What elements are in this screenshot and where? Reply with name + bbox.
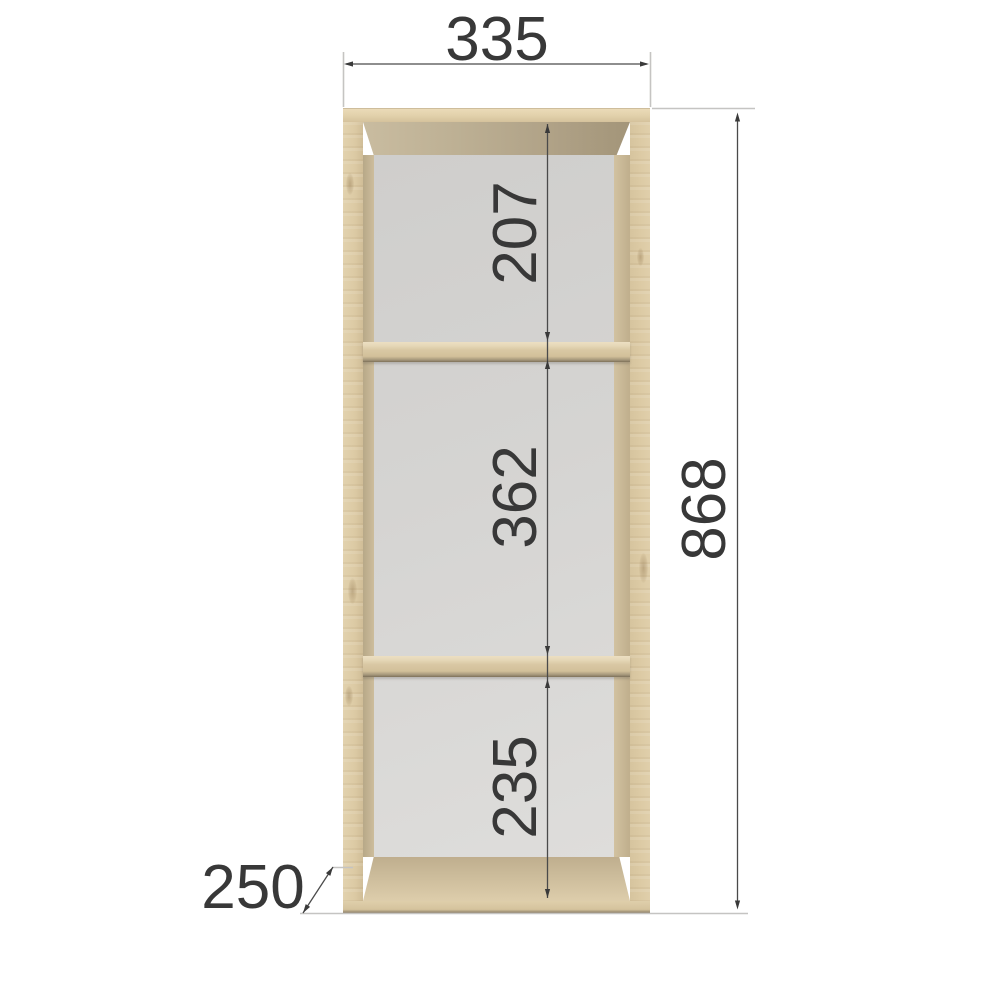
top-compartment-dimension-label: 207 [485, 181, 547, 284]
bottom-compartment-dimension-label: 235 [485, 735, 547, 838]
right-side-inner-face [614, 155, 630, 857]
lower-shelf [363, 656, 630, 677]
top-panel-front-edge [343, 108, 650, 122]
right-side-panel [630, 122, 650, 903]
middle-compartment-dimension-label: 362 [485, 445, 547, 548]
wood-knot [639, 553, 648, 583]
depth-dimension-label: 250 [201, 857, 304, 919]
arrow-down-icon [735, 901, 740, 910]
left-side-inner-face [363, 155, 374, 857]
arrow-right-icon [640, 61, 649, 66]
wood-knot [346, 173, 354, 195]
top-panel-underside [363, 122, 630, 155]
bottom-panel-top-surface [363, 857, 630, 901]
arrow-left-icon [344, 61, 353, 66]
arrow-diagonal-up-icon [326, 867, 333, 876]
bottom-panel-front-edge [343, 901, 650, 913]
wood-knot [345, 686, 353, 706]
upper-shelf [363, 342, 630, 362]
width-dimension-label: 335 [445, 9, 548, 71]
arrow-up-icon [735, 113, 740, 122]
depth-dimension-line [303, 867, 333, 913]
wood-knot [637, 248, 644, 266]
wood-knot [348, 578, 357, 604]
left-side-panel [343, 122, 363, 903]
height-dimension-label: 868 [674, 457, 736, 560]
dimension-drawing: 335 868 207 362 235 250 [0, 0, 1000, 1000]
